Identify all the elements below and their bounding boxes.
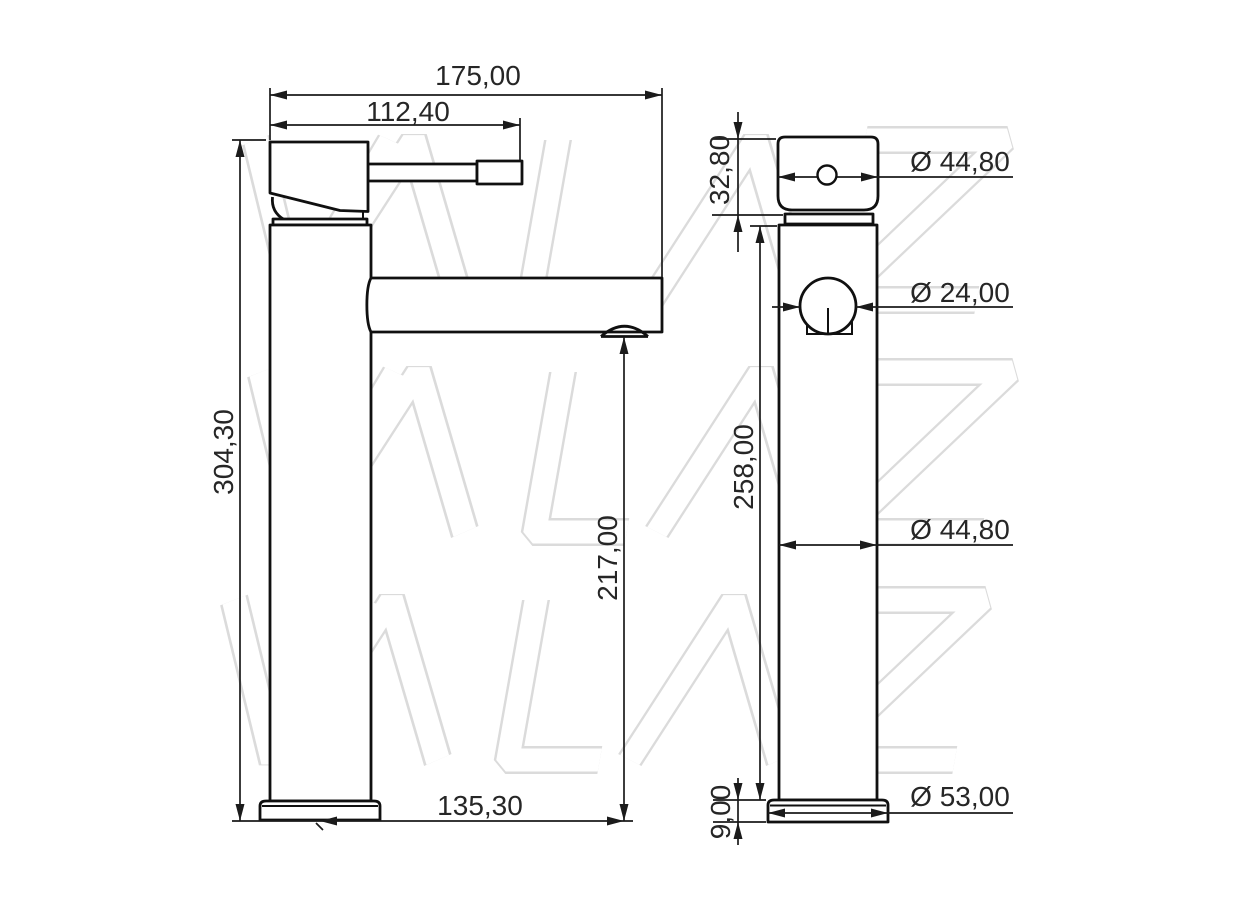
handle-grip (477, 161, 522, 184)
dim-head-diameter-label: Ø 44,80 (910, 146, 1010, 177)
dim-base-height-label: 9,00 (705, 785, 736, 840)
dim-body-height-label: 258,00 (728, 424, 759, 510)
cap-screw-circle (818, 166, 837, 185)
dim-outlet-diameter-label: Ø 24,00 (910, 277, 1010, 308)
dim-total-width-label: 175,00 (435, 60, 521, 91)
body-column (270, 225, 371, 801)
base-plate-front (768, 800, 888, 822)
dim-base-diameter-label: Ø 53,00 (910, 781, 1010, 812)
dim-spout-height-label: 217,00 (592, 515, 623, 601)
base-plate (260, 801, 380, 820)
dim-handle-reach-label: 112,40 (366, 96, 450, 127)
handle-lever-bar (368, 164, 477, 181)
technical-drawing-canvas: VALAZ (0, 0, 1233, 924)
collar-ring-front (785, 214, 873, 224)
dim-body-diameter-label: Ø 44,80 (910, 514, 1010, 545)
dim-spout-reach-label: 135,30 (437, 790, 523, 821)
dim-total-height-label: 304,30 (208, 409, 239, 495)
faucet-dimension-drawing: VALAZ (0, 0, 1233, 924)
dim-head-height-label: 32,80 (704, 135, 735, 205)
spout (367, 278, 662, 332)
front-view (768, 137, 888, 822)
